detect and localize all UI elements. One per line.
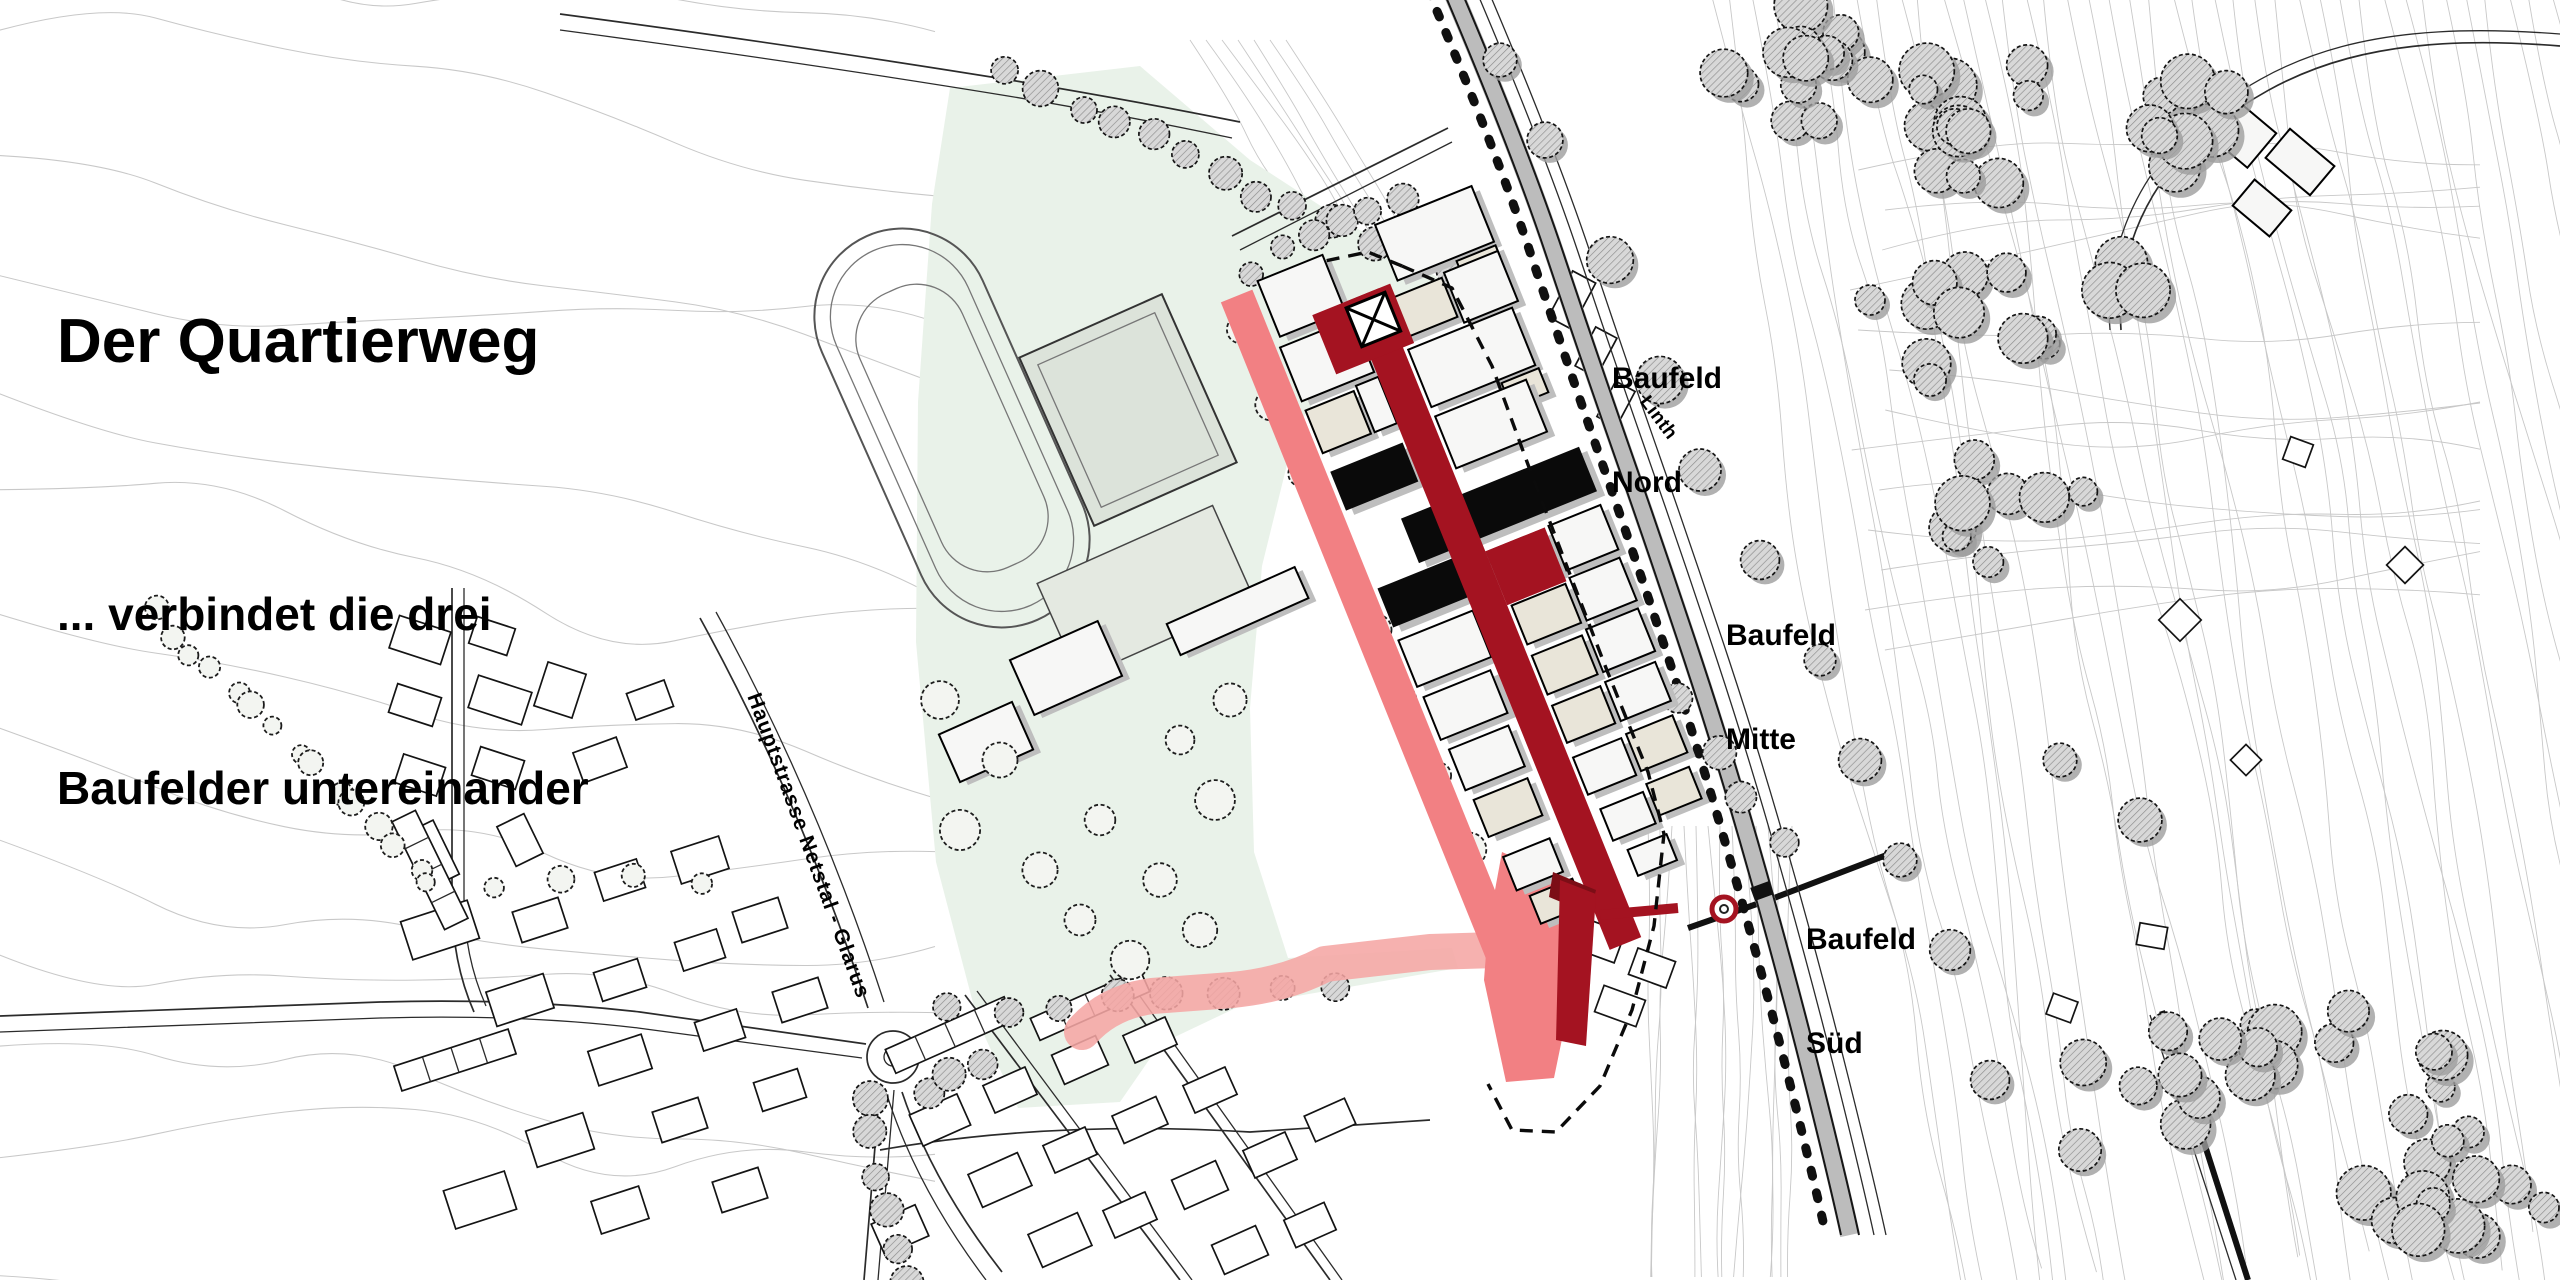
baufeld-mitte-line-2: Mitte	[1726, 723, 1836, 758]
baufeld-nord-line-1: Baufeld	[1612, 362, 1722, 397]
circle-marker	[1712, 897, 1736, 921]
site-plan: Der Quartierweg ... verbindet die drei B…	[0, 0, 2560, 1280]
page-subtitle: ... verbindet die drei Baufelder unterei…	[57, 470, 589, 934]
baufeld-nord-line-2: Nord	[1612, 466, 1722, 501]
label-baufeld-mitte: Baufeld Mitte	[1726, 549, 1836, 827]
subtitle-line-1: ... verbindet die drei	[57, 586, 589, 644]
subtitle-line-2: Baufelder untereinander	[57, 760, 589, 818]
baufeld-sued-line-2: Süd	[1806, 1027, 1916, 1062]
label-baufeld-sued: Baufeld Süd	[1806, 853, 1916, 1131]
page-title: Der Quartierweg	[57, 306, 539, 377]
baufeld-mitte-line-1: Baufeld	[1726, 619, 1836, 654]
baufeld-sued-line-1: Baufeld	[1806, 923, 1916, 958]
